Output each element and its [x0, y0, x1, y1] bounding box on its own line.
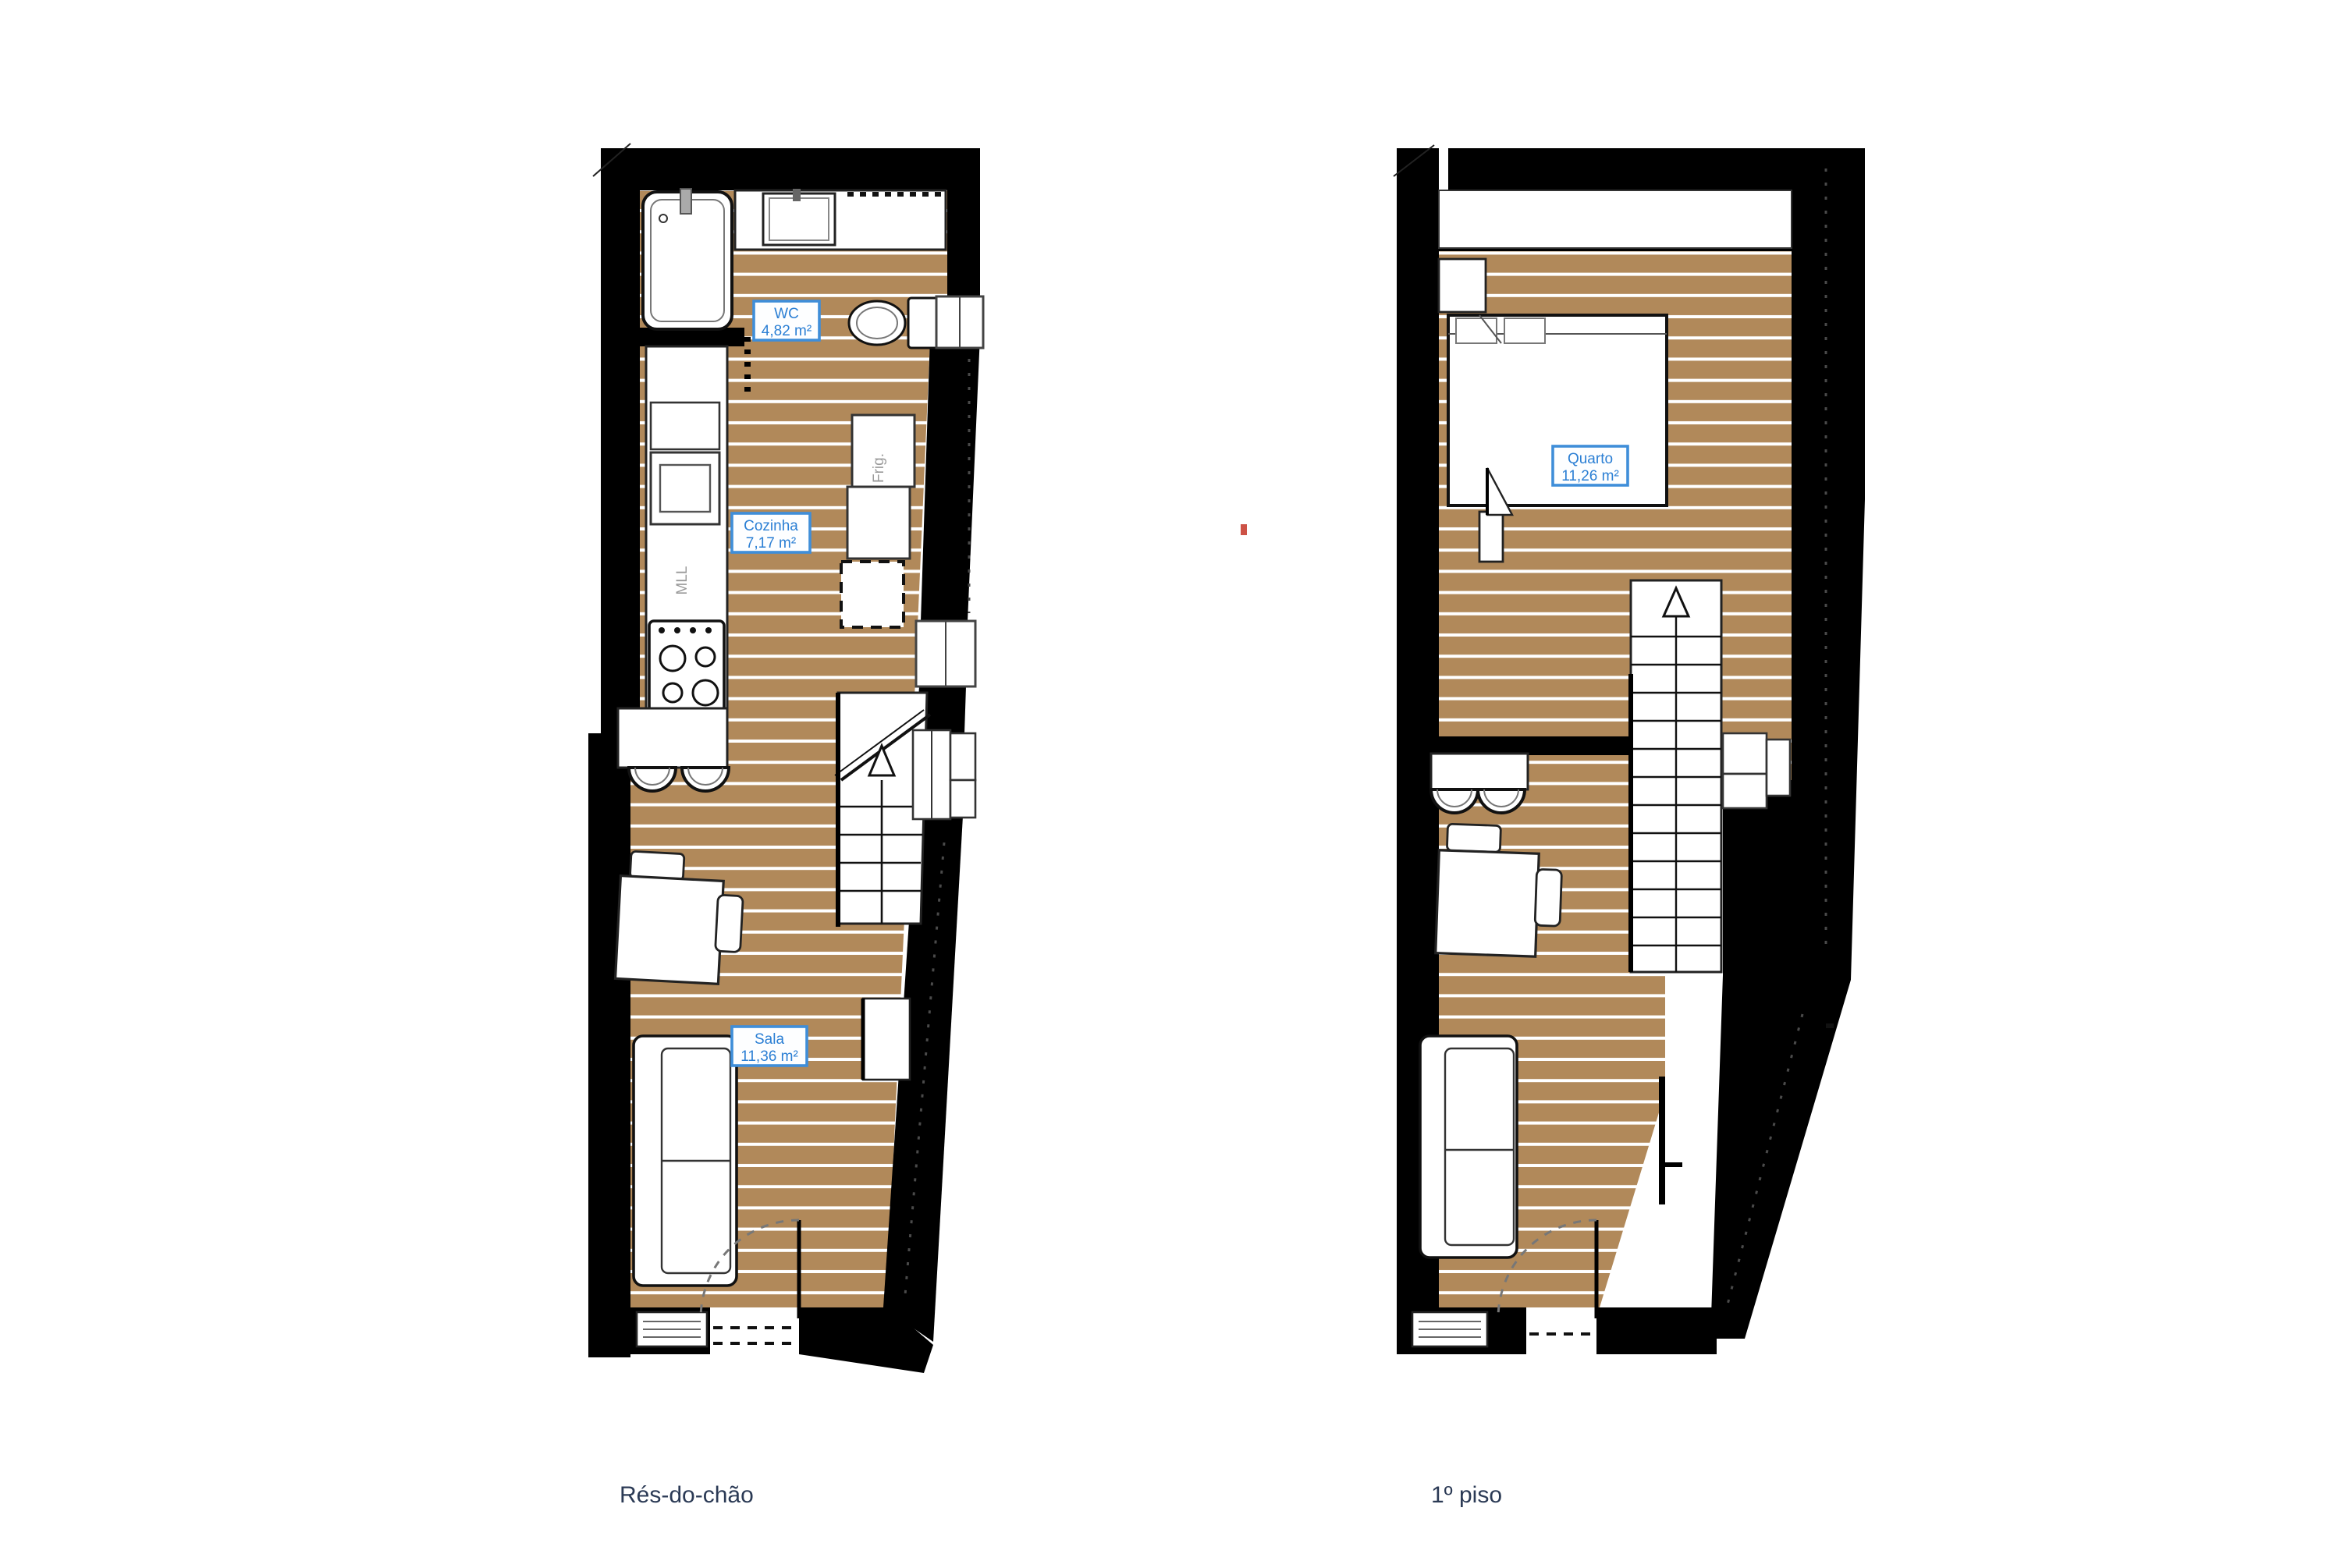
- dining-table: [1436, 850, 1540, 956]
- fridge-column: Frig.: [841, 415, 915, 627]
- room-area: 11,36 m²: [740, 1048, 798, 1065]
- room-name: WC: [774, 306, 799, 322]
- room-label-quarto: Quarto 11,26 m²: [1553, 446, 1628, 485]
- sofa-seat: [1445, 1048, 1514, 1245]
- room-label-wc: WC 4,82 m²: [754, 301, 819, 340]
- wall-left-lower: [588, 733, 630, 1357]
- chair: [1447, 824, 1501, 852]
- double-basin-counter: [618, 708, 729, 791]
- canvas: MLL Frig.: [0, 0, 2344, 1568]
- nightstand: [1439, 259, 1486, 312]
- toilet: [849, 298, 939, 348]
- living-room-door-panel: [863, 999, 910, 1080]
- toilet-tank: [908, 298, 939, 348]
- room-label-cozinha: Cozinha 7,17 m²: [732, 513, 810, 552]
- kitchen-window: [916, 621, 975, 686]
- wall-fin-tick: [1665, 1162, 1682, 1167]
- room-area: 11,26 m²: [1561, 468, 1619, 484]
- wall-right-kitchen: [921, 335, 980, 621]
- sofa-ground: [634, 1036, 737, 1286]
- wall-top: [1448, 148, 1792, 190]
- kitchen-counter-box: [651, 403, 719, 449]
- staircase-first: [1631, 580, 1721, 972]
- wall-top: [623, 148, 980, 190]
- terrace-band: [1439, 190, 1792, 248]
- room-name: Sala: [755, 1031, 784, 1048]
- fridge-label: Frig.: [871, 453, 887, 483]
- dining-table: [616, 876, 724, 984]
- first-floor-caption: 1º piso: [1431, 1482, 1502, 1508]
- red-stray-mark: [1241, 524, 1247, 535]
- sofa-first: [1420, 1036, 1517, 1258]
- door-threshold: [710, 1315, 799, 1351]
- basin-faucet: [793, 189, 801, 201]
- chair: [716, 895, 744, 953]
- black-stray-mark: [1826, 1023, 1834, 1028]
- floor-plans-drawing: MLL Frig.: [0, 0, 2344, 1568]
- wall-fin: [1659, 1077, 1665, 1204]
- oven: [651, 452, 719, 524]
- wall-left-upper: [601, 148, 640, 741]
- pillow: [1504, 318, 1545, 343]
- nightstand: [1479, 512, 1503, 562]
- bathtub: [643, 189, 732, 329]
- ground-floor-caption: Rés-do-chão: [620, 1482, 754, 1508]
- pillow: [1456, 318, 1497, 343]
- bathtub-faucet: [680, 189, 691, 214]
- stove: [649, 621, 724, 711]
- room-area: 7,17 m²: [746, 535, 796, 552]
- wash-basin-counter: [735, 189, 946, 250]
- room-area: 4,82 m²: [762, 323, 812, 339]
- room-label-sala: Sala 11,36 m²: [732, 1027, 807, 1066]
- chair: [1535, 869, 1561, 926]
- stair-landing-door: [913, 730, 975, 819]
- room-name: Quarto: [1568, 451, 1613, 467]
- dishwasher-label: MLL: [674, 566, 691, 595]
- wall-bottom-right: [1596, 1307, 1717, 1354]
- wc-window: [936, 296, 983, 348]
- wall-bedroom-divider: [1439, 736, 1631, 755]
- first-floor-plan: Quarto 11,26 m² 1º piso: [1394, 145, 1865, 1508]
- counter-box: [847, 487, 910, 559]
- ground-floor-plan: MLL Frig.: [588, 144, 983, 1508]
- room-name: Cozinha: [744, 518, 798, 534]
- future-appliance-dashed: [841, 562, 904, 627]
